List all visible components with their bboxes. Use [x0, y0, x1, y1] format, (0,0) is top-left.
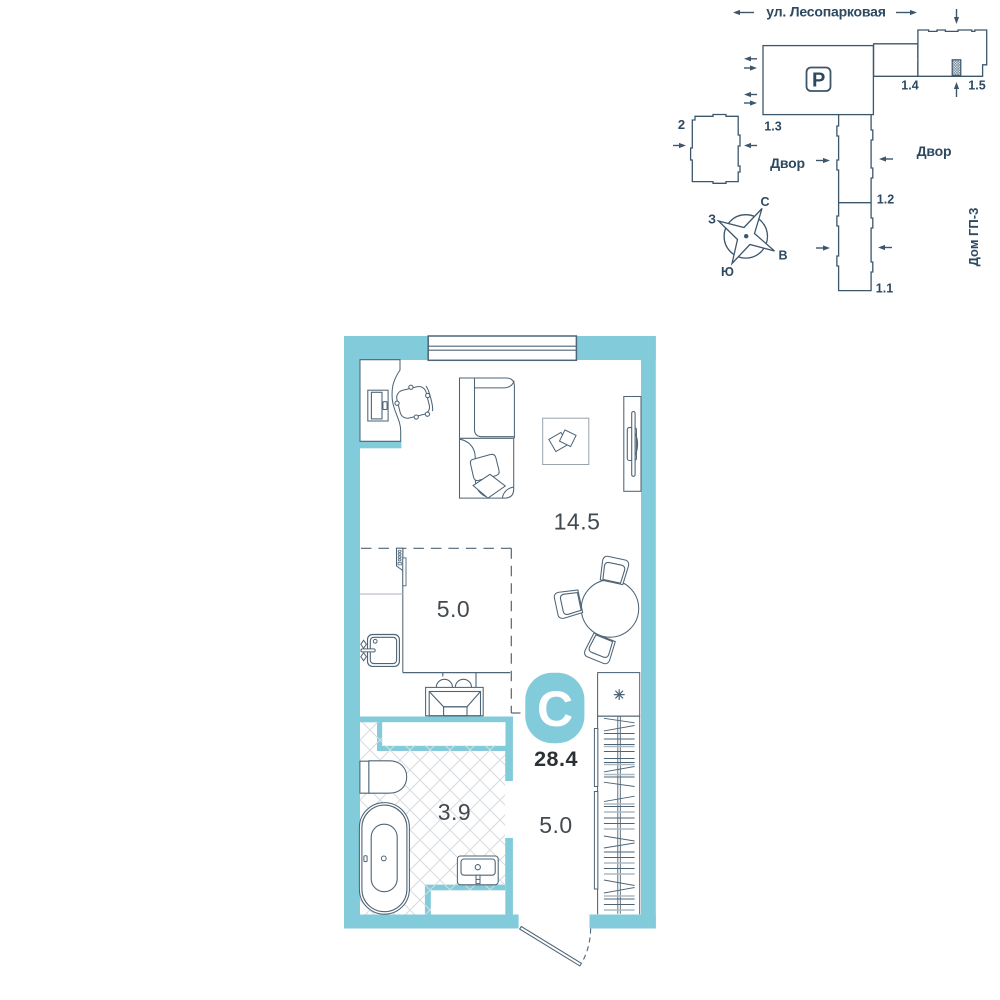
svg-text:1.4: 1.4 — [901, 79, 918, 93]
svg-text:5.0: 5.0 — [539, 812, 572, 838]
svg-text:2: 2 — [678, 117, 685, 132]
svg-text:1.2: 1.2 — [877, 193, 894, 207]
svg-text:1.3: 1.3 — [764, 120, 781, 134]
svg-text:P: P — [812, 69, 825, 91]
svg-text:С: С — [537, 681, 573, 737]
svg-text:С: С — [760, 195, 769, 209]
svg-text:14.5: 14.5 — [554, 508, 601, 534]
svg-text:1.5: 1.5 — [968, 79, 985, 93]
svg-text:Дом ГП-3: Дом ГП-3 — [966, 208, 981, 267]
svg-text:З: З — [708, 213, 716, 227]
svg-text:В: В — [778, 249, 787, 263]
svg-text:3.9: 3.9 — [438, 799, 471, 825]
svg-text:28.4: 28.4 — [534, 747, 578, 771]
svg-text:5.0: 5.0 — [437, 596, 470, 622]
svg-text:Двор: Двор — [917, 143, 952, 159]
svg-text:Ю: Ю — [721, 265, 734, 279]
svg-text:1.1: 1.1 — [876, 282, 893, 296]
svg-text:ул. Лесопарковая: ул. Лесопарковая — [766, 4, 885, 20]
svg-text:Двор: Двор — [770, 155, 805, 171]
